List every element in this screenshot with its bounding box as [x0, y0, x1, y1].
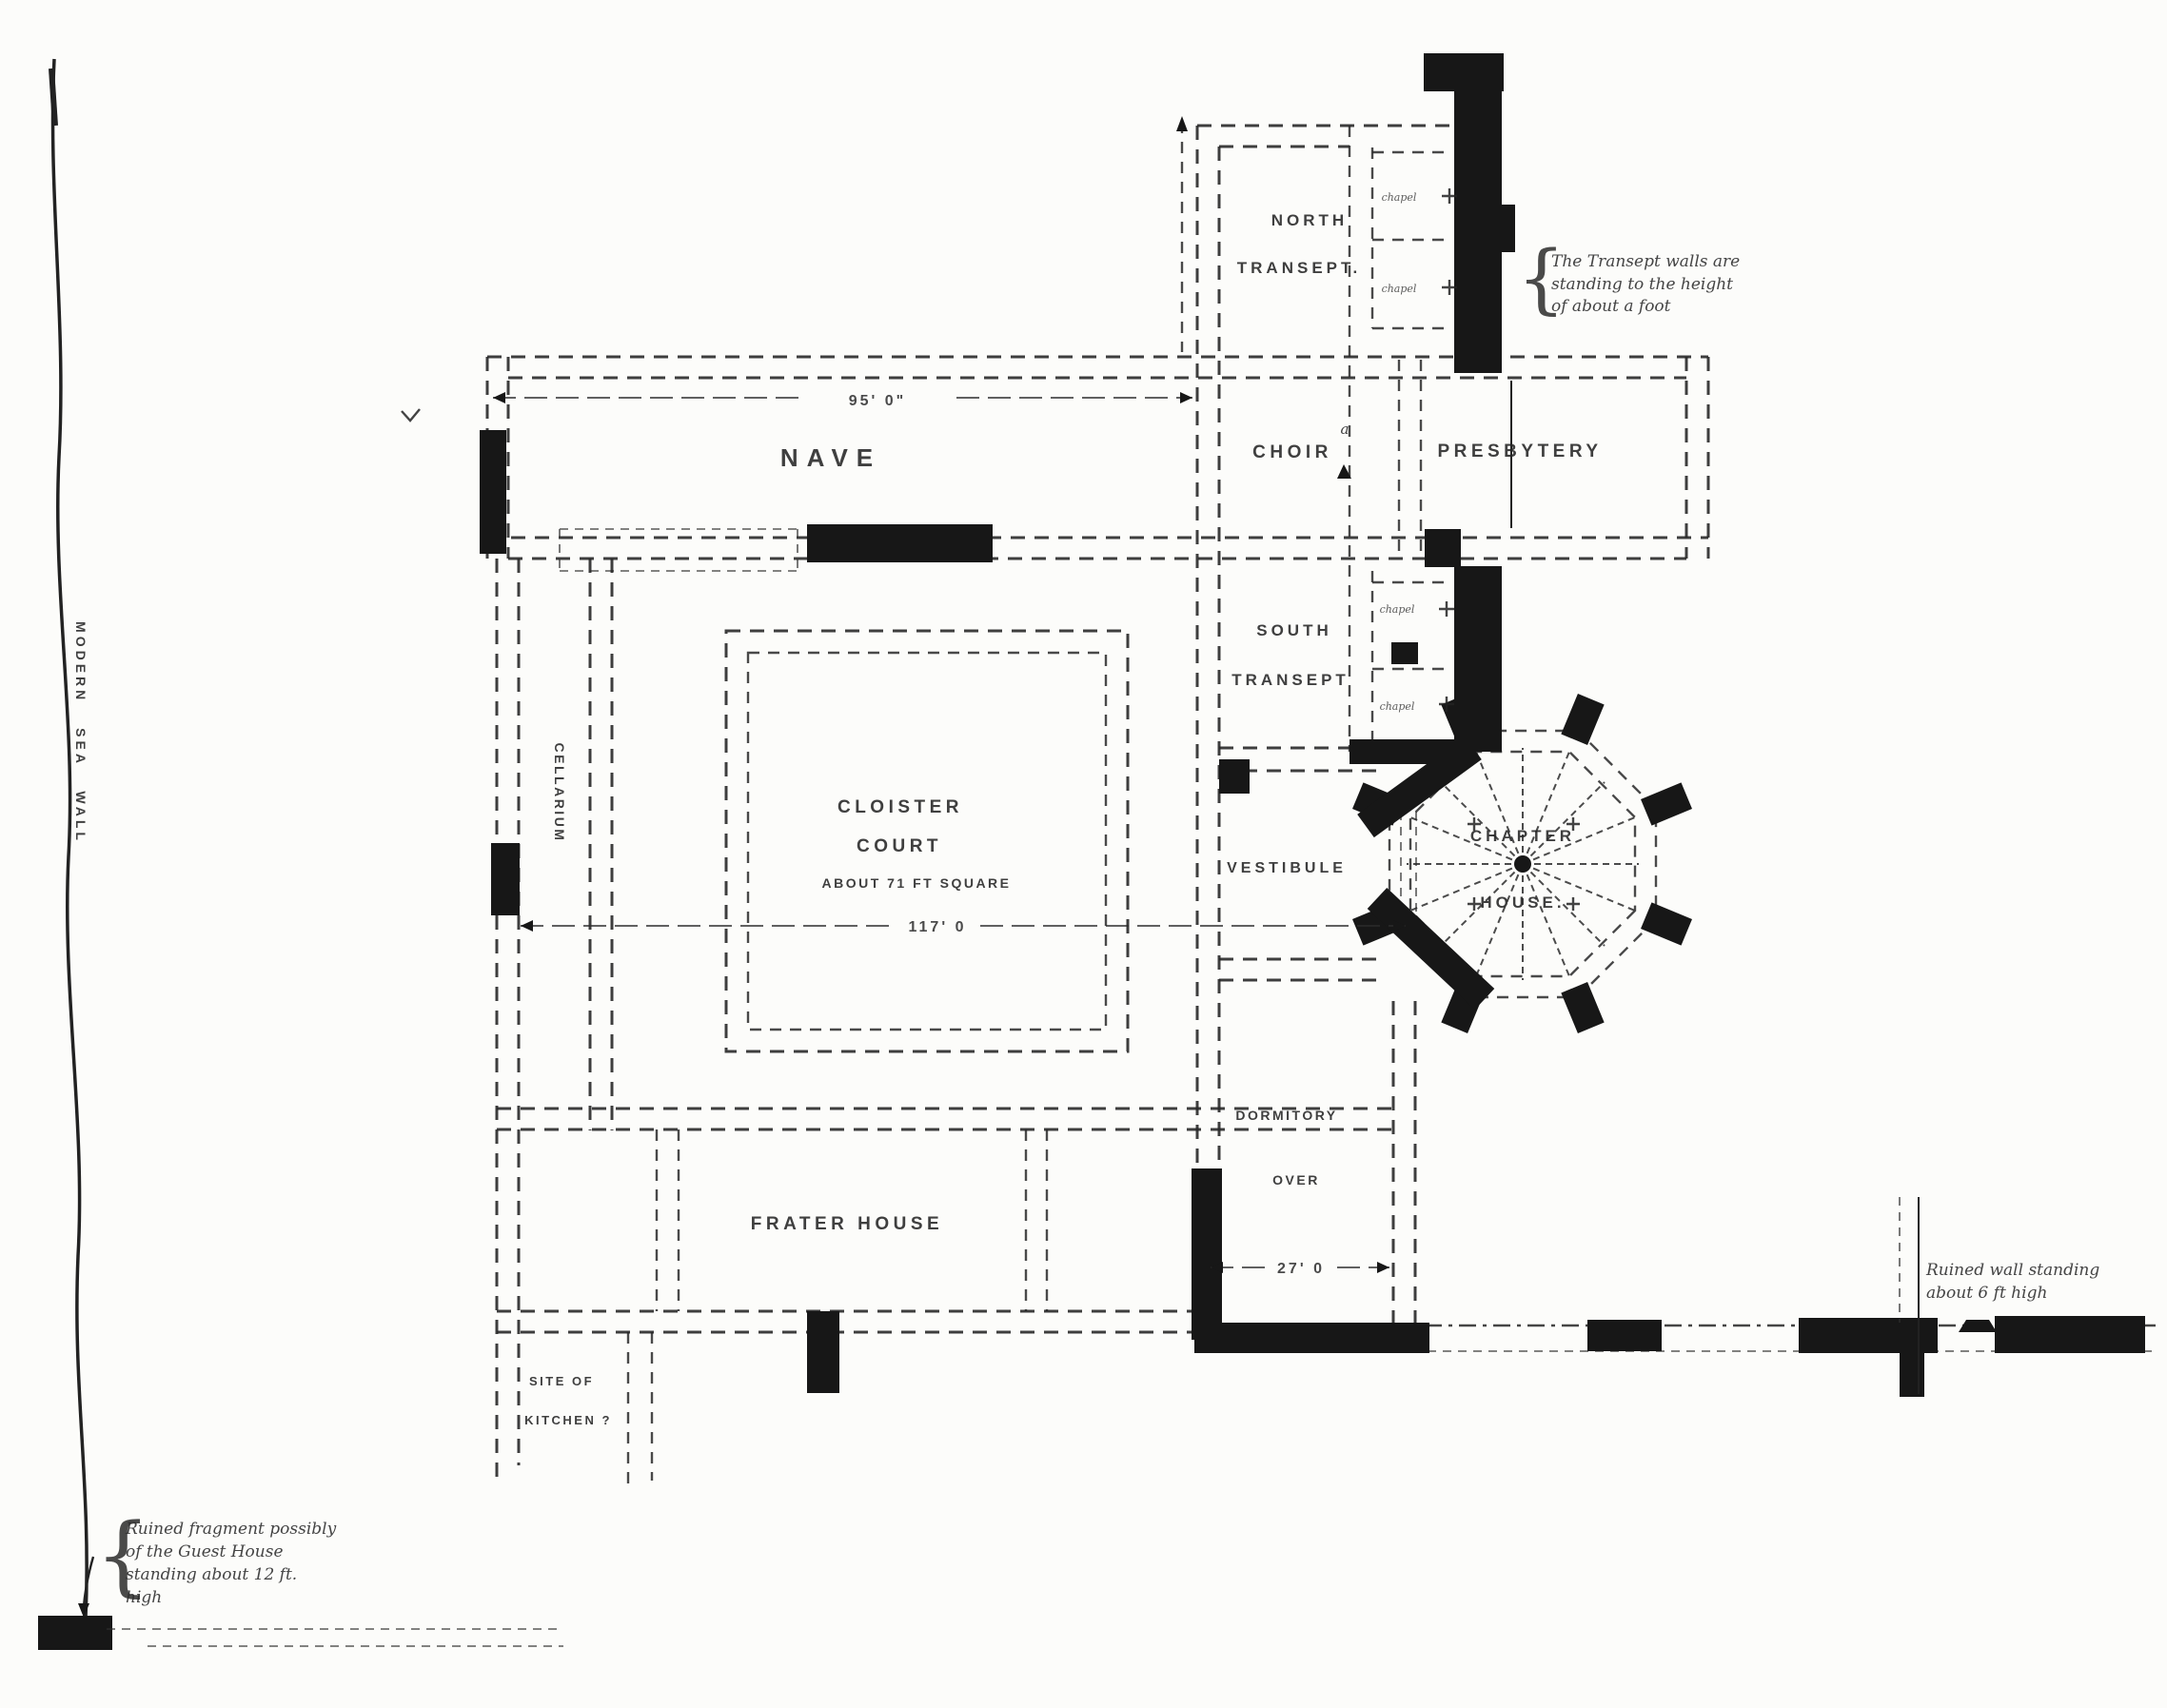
frater-house-label: FRATER HOUSE: [751, 1214, 943, 1234]
cloister-dimension: 117' 0: [909, 919, 967, 935]
vault-boss: [1514, 855, 1531, 873]
guest-note-line-1: Ruined fragment possibly: [125, 1520, 337, 1539]
sea-wall-label: MODERN SEA WALL: [73, 621, 89, 844]
cloister-size-note: ABOUT 71 FT SQUARE: [821, 875, 1011, 891]
guest-note-line-3: standing about 12 ft.: [126, 1565, 297, 1584]
cloister-label-1: CLOISTER: [837, 797, 963, 817]
nave-label: NAVE: [780, 443, 881, 472]
chapel-label-n2: chapel: [1382, 283, 1417, 295]
chapter-house-label-1: CHAPTER: [1470, 827, 1575, 845]
entrance-wall-south: [1377, 898, 1485, 999]
altar-mark-a: a: [1341, 421, 1349, 438]
dimension-lines: [493, 392, 1406, 1273]
north-transept-label-1: NORTH: [1271, 211, 1348, 229]
chapel-label-s2: chapel: [1380, 700, 1415, 713]
abbey-ground-plan: NAVE 95' 0" CHOIR PRESBYTERY NORTH TRANS…: [0, 0, 2167, 1708]
south-transept-label-1: SOUTH: [1256, 621, 1332, 639]
wall-note-line-2: about 6 ft high: [1926, 1284, 2047, 1303]
handwritten-notes: { The Transept walls are standing to the…: [95, 234, 2099, 1607]
transept-note-line-2: standing to the height: [1551, 275, 1733, 294]
transept-note-line-3: of about a foot: [1551, 297, 1671, 316]
chapel-label-n1: chapel: [1382, 191, 1417, 204]
wall-note-line-1: Ruined wall standing: [1925, 1261, 2099, 1280]
south-transept-label-2: TRANSEPT: [1231, 671, 1349, 689]
dormitory-label-2: OVER: [1272, 1172, 1320, 1188]
cloister-label-2: COURT: [857, 836, 942, 856]
chapel-label-s1: chapel: [1380, 603, 1415, 616]
kitchen-label-1: SITE OF: [529, 1374, 594, 1388]
transept-note-line-1: The Transept walls are: [1551, 252, 1740, 271]
guest-note-line-2: of the Guest House: [126, 1542, 284, 1561]
presbytery-label: PRESBYTERY: [1437, 442, 1602, 461]
standing-wall-fragments: [480, 53, 1515, 1393]
choir-label: CHOIR: [1252, 442, 1332, 462]
cellarium-label: CELLARIUM: [552, 743, 567, 843]
dormitory-label-1: DORMITORY: [1235, 1108, 1337, 1123]
north-transept-label-2: TRANSEPT.: [1237, 259, 1361, 277]
guest-note-line-4: high: [126, 1588, 162, 1607]
kitchen-label-2: KITCHEN ?: [524, 1413, 612, 1427]
dormitory-dimension: 27' 0: [1277, 1261, 1325, 1277]
vestibule-label: VESTIBULE: [1227, 860, 1347, 876]
plan-drawing: NAVE 95' 0" CHOIR PRESBYTERY NORTH TRANS…: [0, 0, 2167, 1708]
transept-walls: [1197, 126, 1454, 1323]
church-walls: [402, 116, 1708, 571]
nave-dimension: 95' 0": [849, 393, 907, 409]
chapter-house-label-2: HOUSE.: [1480, 893, 1565, 912]
